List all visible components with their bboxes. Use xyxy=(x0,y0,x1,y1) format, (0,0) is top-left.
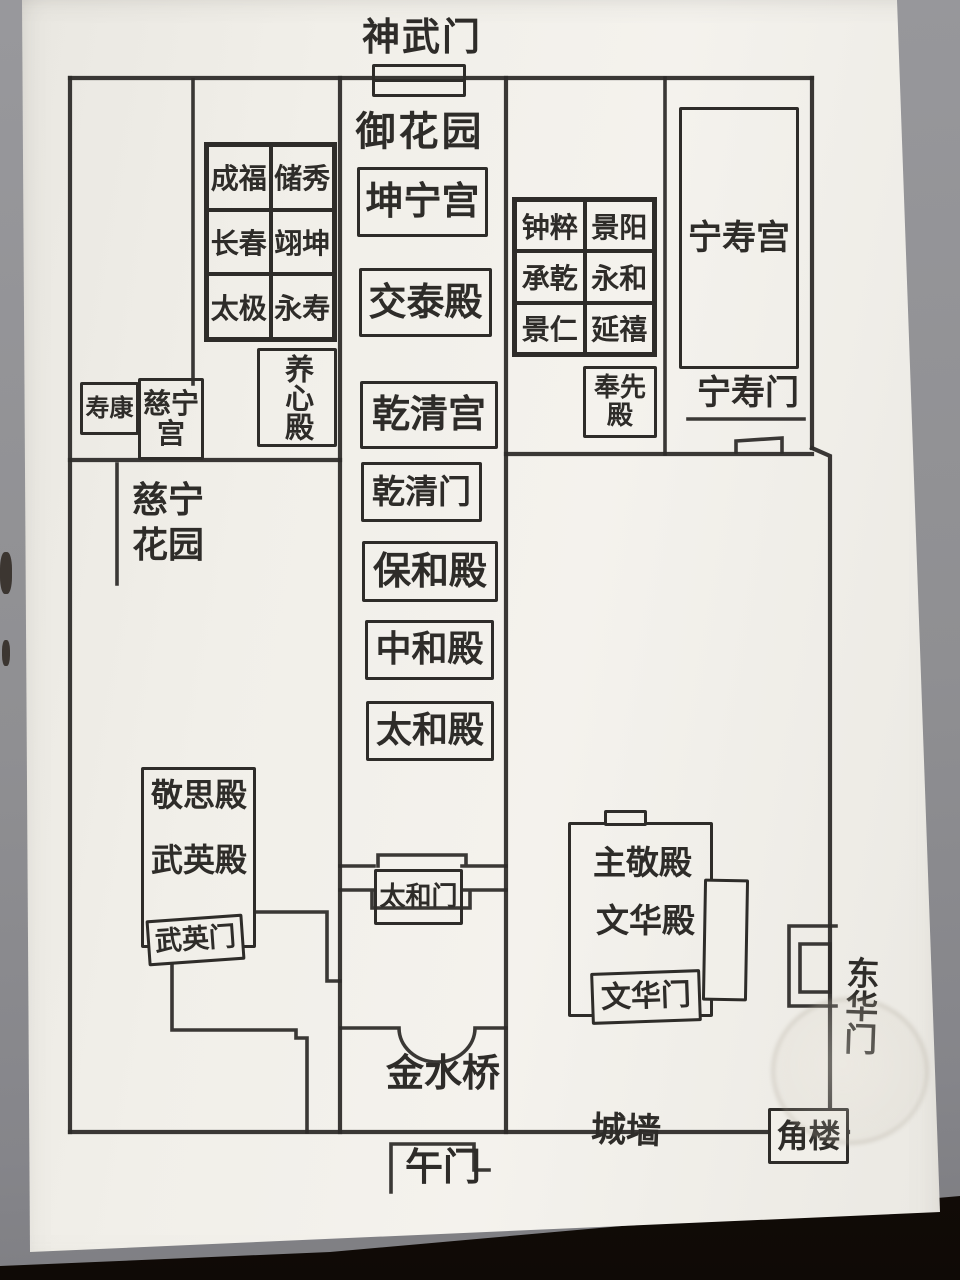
shenwumen-label: 神武门 xyxy=(360,16,484,59)
kunninggong-hall: 坤宁宫 xyxy=(357,167,488,237)
yangxindian-hall: 养心殿 xyxy=(257,348,337,447)
jingsidian-label: 敬思殿 xyxy=(149,778,249,814)
wenhuamen-gate: 文华门 xyxy=(590,969,702,1025)
cining-garden-label: 慈宁花园 xyxy=(122,478,214,568)
shenwumen-gate xyxy=(372,64,466,97)
zhujingdian-label: 主敬殿 xyxy=(585,845,700,882)
donghuamen-gate-outer xyxy=(789,926,836,1006)
palace-cell: 翊坤 xyxy=(271,210,335,275)
baohedian-hall: 保和殿 xyxy=(362,541,498,602)
wenhuadian-label: 文华殿 xyxy=(588,903,703,940)
palace-cell: 景阳 xyxy=(585,200,655,251)
city-wall-label: 城墙 xyxy=(577,1110,674,1153)
palace-cell: 钟粹 xyxy=(515,200,585,251)
palace-cell: 延禧 xyxy=(585,303,655,354)
wuyingmen-gate: 武英门 xyxy=(146,914,246,967)
qianqingmen-gate: 乾清门 xyxy=(361,462,482,522)
palace-cell: 景仁 xyxy=(515,303,585,354)
paper-edge-smudge xyxy=(0,552,12,594)
jiaotaidian-hall: 交泰殿 xyxy=(359,268,492,337)
fengxiandian-hall: 奉先殿 xyxy=(583,366,657,438)
taihedian-hall: 太和殿 xyxy=(366,701,494,761)
shoukanggong-hall: 寿康 xyxy=(80,382,139,435)
shenwumen-gate-midline xyxy=(373,79,465,82)
photo-of-hand-drawn-map: 神武门 御花园 坤宁宫 交泰殿 乾清宫 乾清门 保和殿 中和殿 太和殿 太和门 … xyxy=(0,0,960,1280)
donghuamen-gate-inner xyxy=(800,944,830,992)
cininggong-hall: 慈宁宫 xyxy=(138,378,204,460)
palace-cell: 永和 xyxy=(585,251,655,302)
paper-edge-smudge xyxy=(2,640,10,666)
palace-cell: 永寿 xyxy=(271,274,335,339)
imperial-garden-label: 御花园 xyxy=(355,110,485,155)
taihemen-gate: 太和门 xyxy=(374,869,463,925)
wumen-label: 午门 xyxy=(398,1146,488,1189)
palace-cell: 长春 xyxy=(207,210,271,275)
ningshougong-hall: 宁寿宫 xyxy=(679,107,799,369)
wuyingdian-label: 武英殿 xyxy=(149,843,249,879)
ningshoumen-label: 宁寿门 xyxy=(690,374,806,412)
east-divider-gate-mark xyxy=(736,438,782,452)
wenhua-court-notch xyxy=(604,810,647,826)
palace-cell: 太极 xyxy=(207,274,271,339)
golden-water-bridge-label: 金水桥 xyxy=(383,1052,503,1095)
east-six-palaces-grid: 钟粹 景阳 承乾 永和 景仁 延禧 xyxy=(512,197,657,357)
wuying-court-wall-lower xyxy=(172,960,307,1132)
qianqinggong-hall: 乾清宫 xyxy=(360,381,498,449)
paper-sheet: 神武门 御花园 坤宁宫 交泰殿 乾清宫 乾清门 保和殿 中和殿 太和殿 太和门 … xyxy=(0,0,960,1280)
zhonghedian-hall: 中和殿 xyxy=(365,620,494,680)
palace-cell: 成福 xyxy=(207,145,271,210)
palace-cell: 储秀 xyxy=(271,145,335,210)
west-six-palaces-grid: 成福 储秀 长春 翊坤 太极 永寿 xyxy=(204,142,337,342)
palace-cell: 承乾 xyxy=(515,251,585,302)
wuying-court-wall-upper xyxy=(255,912,340,981)
wenhua-side-annex xyxy=(702,879,749,1002)
water-stain xyxy=(772,998,928,1144)
